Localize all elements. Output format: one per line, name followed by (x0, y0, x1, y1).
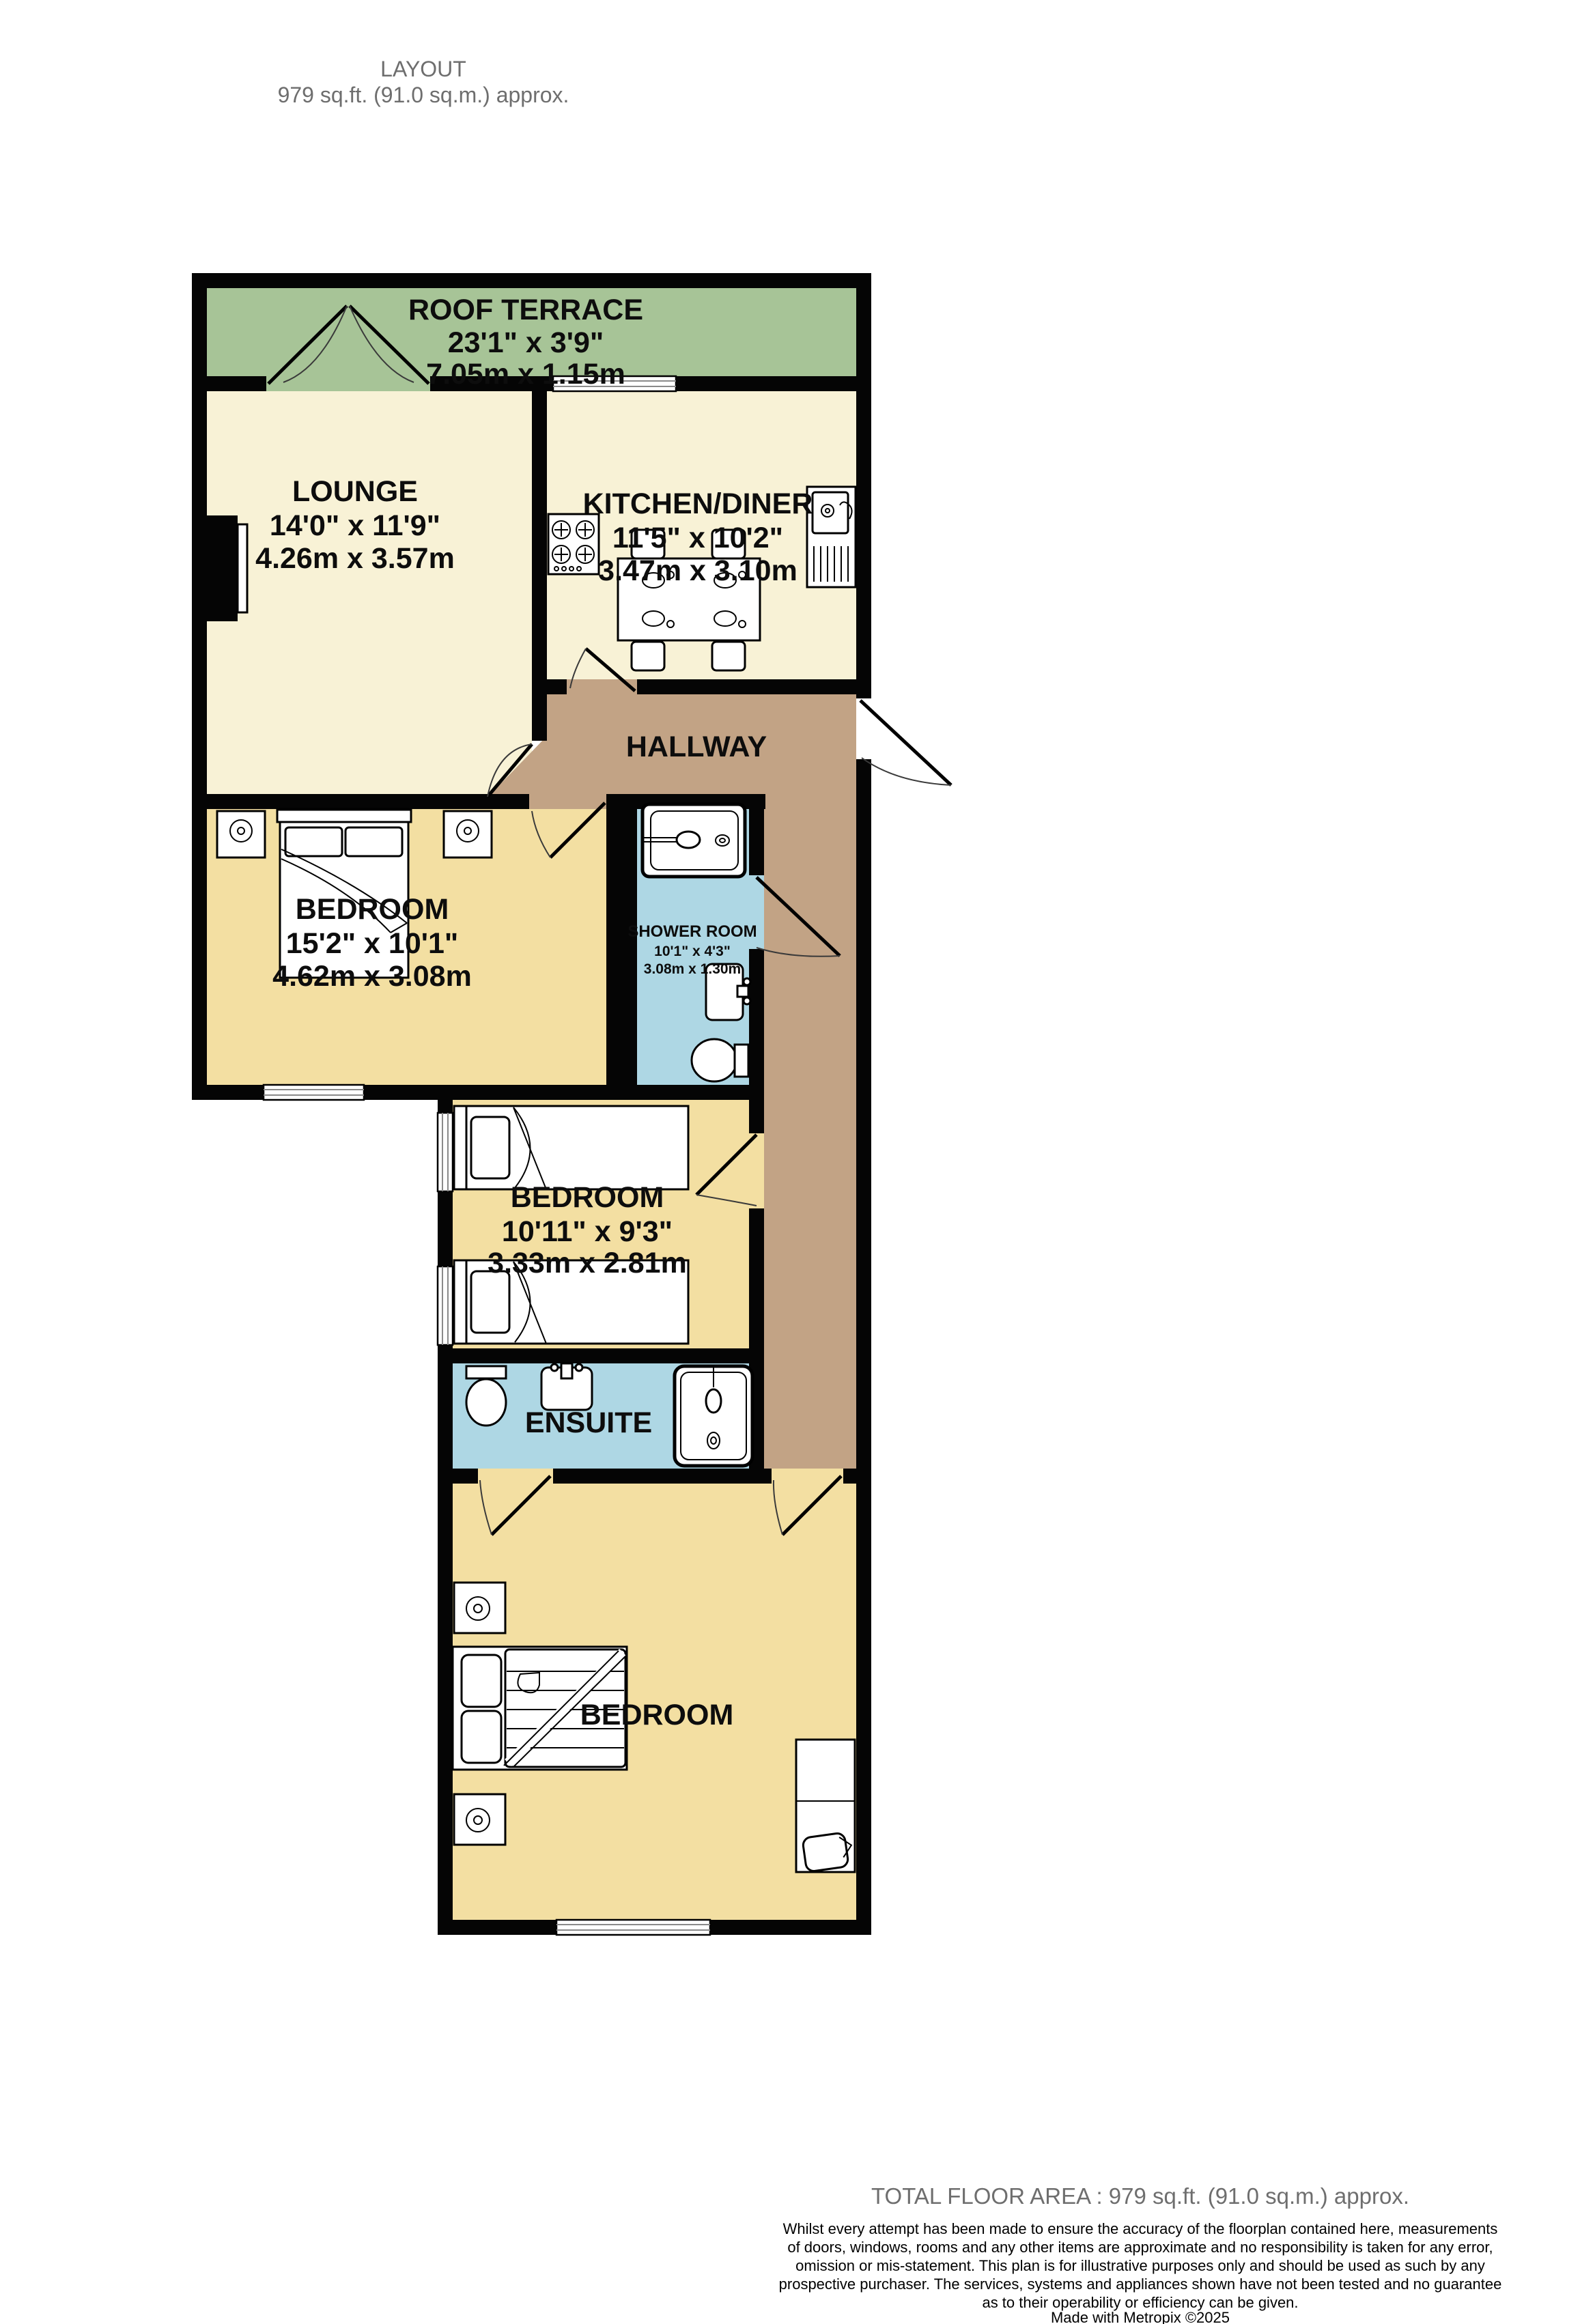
label-kitchen-imperial: 11'5" x 10'2" (612, 522, 783, 554)
room-lounge (207, 391, 532, 794)
shower-tray-icon (643, 804, 745, 877)
bathtub-icon (675, 1366, 752, 1466)
nightstand-icon (454, 1794, 505, 1845)
kitchen-sink-icon (807, 487, 856, 587)
credit-line: Made with Metropix ©2025 (1051, 2309, 1230, 2324)
label-shower-room-metric: 3.08m x 1.30m (644, 961, 741, 977)
label-roof-terrace-metric: 7.05m x 1.15m (426, 358, 625, 391)
label-shower-room: SHOWER ROOM (627, 922, 757, 941)
window-bedroom-1 (264, 1085, 364, 1100)
disclaimer-line: Whilst every attempt has been made to en… (783, 2220, 1498, 2237)
label-ensuite: ENSUITE (525, 1406, 652, 1439)
bathroom-sink-icon (541, 1363, 592, 1410)
total-floor-area: TOTAL FLOOR AREA : 979 sq.ft. (91.0 sq.m… (871, 2183, 1409, 2209)
toilet-icon (466, 1366, 506, 1426)
hob-icon (548, 514, 599, 574)
nightstand-icon (217, 811, 265, 858)
label-kitchen: KITCHEN/DINER (583, 487, 813, 520)
desk-icon (796, 1740, 855, 1872)
nightstand-icon (444, 811, 492, 858)
label-kitchen-metric: 3.47m x 3.10m (598, 554, 797, 587)
label-shower-room-imperial: 10'1" x 4'3" (654, 944, 731, 959)
window-bedroom-2-top (438, 1113, 453, 1191)
label-lounge-imperial: 14'0" x 11'9" (270, 509, 440, 542)
label-bedroom-1: BEDROOM (296, 893, 449, 926)
floor-plan: LAYOUT 979 sq.ft. (91.0 sq.m.) approx. (0, 0, 1595, 2324)
plan-area-subtitle: 979 sq.ft. (91.0 sq.m.) approx. (278, 83, 569, 107)
label-hallway: HALLWAY (626, 731, 767, 763)
window-bedroom-2-bottom (438, 1266, 453, 1345)
plan-title: LAYOUT (380, 57, 466, 81)
disclaimer-line: omission or mis-statement. This plan is … (795, 2257, 1485, 2274)
doorway-bedroom-3 (772, 1469, 843, 1484)
toilet-icon (692, 1039, 748, 1081)
label-bedroom-1-metric: 4.62m x 3.08m (272, 960, 472, 993)
label-bedroom-1-imperial: 15'2" x 10'1" (286, 927, 459, 960)
chimney-breast (207, 515, 238, 621)
fireplace-icon (238, 524, 247, 612)
doorway-ensuite (478, 1469, 553, 1484)
label-bedroom-2-imperial: 10'11" x 9'3" (502, 1215, 673, 1248)
window-bedroom-3 (556, 1920, 710, 1935)
front-door (860, 700, 951, 785)
disclaimer-line: of doors, windows, rooms and any other i… (787, 2239, 1493, 2256)
label-roof-terrace: ROOF TERRACE (408, 294, 643, 326)
disclaimer-line: prospective purchaser. The services, sys… (779, 2276, 1502, 2293)
nightstand-icon (454, 1583, 505, 1633)
doorway-bedroom-2 (749, 1133, 764, 1208)
footer: TOTAL FLOOR AREA : 979 sq.ft. (91.0 sq.m… (779, 2183, 1502, 2324)
label-lounge: LOUNGE (292, 475, 418, 508)
label-roof-terrace-imperial: 23'1" x 3'9" (448, 326, 604, 359)
label-bedroom-3: BEDROOM (580, 1699, 734, 1731)
label-bedroom-2: BEDROOM (511, 1181, 664, 1214)
label-lounge-metric: 4.26m x 3.57m (255, 542, 455, 575)
single-bed-icon (454, 1106, 688, 1189)
label-bedroom-2-metric: 3.33m x 2.81m (488, 1247, 687, 1279)
